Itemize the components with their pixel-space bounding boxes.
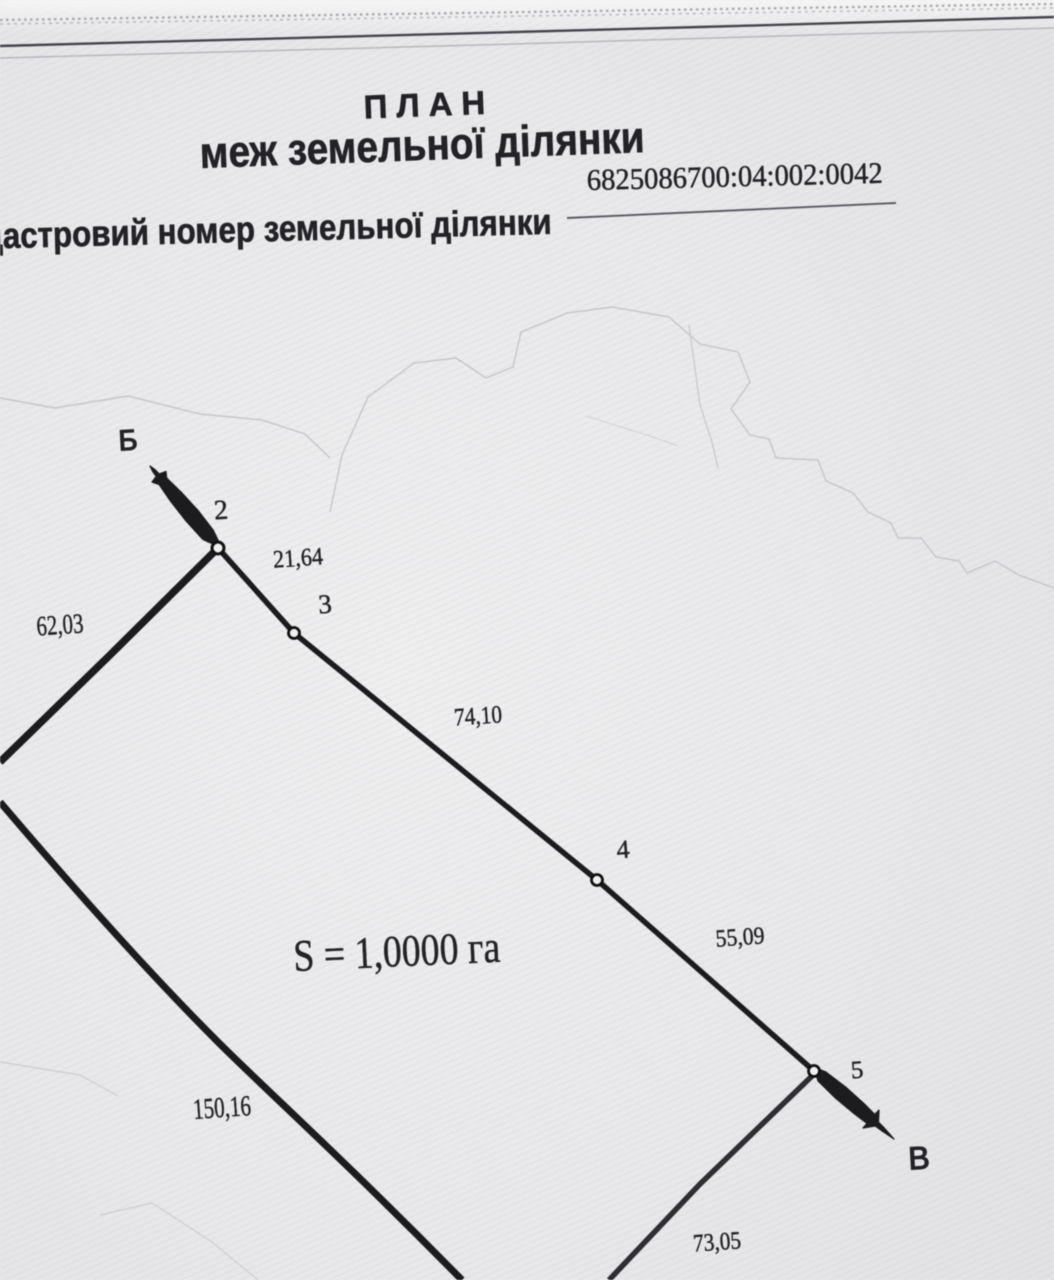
svg-text:5: 5 <box>850 1057 864 1085</box>
svg-text:21,64: 21,64 <box>272 543 324 573</box>
svg-text:2: 2 <box>213 495 229 527</box>
svg-text:150,16: 150,16 <box>192 1090 252 1126</box>
svg-text:55,09: 55,09 <box>715 922 766 952</box>
svg-text:4: 4 <box>615 835 630 865</box>
svg-text:3: 3 <box>317 589 333 620</box>
svg-text:74,10: 74,10 <box>453 701 503 731</box>
svg-text:S = 1,0000 га: S = 1,0000 га <box>292 922 501 981</box>
svg-text:62,03: 62,03 <box>35 608 84 642</box>
svg-text:В: В <box>907 1139 930 1176</box>
svg-text:73,05: 73,05 <box>692 1227 742 1257</box>
svg-text:Б: Б <box>118 425 139 458</box>
